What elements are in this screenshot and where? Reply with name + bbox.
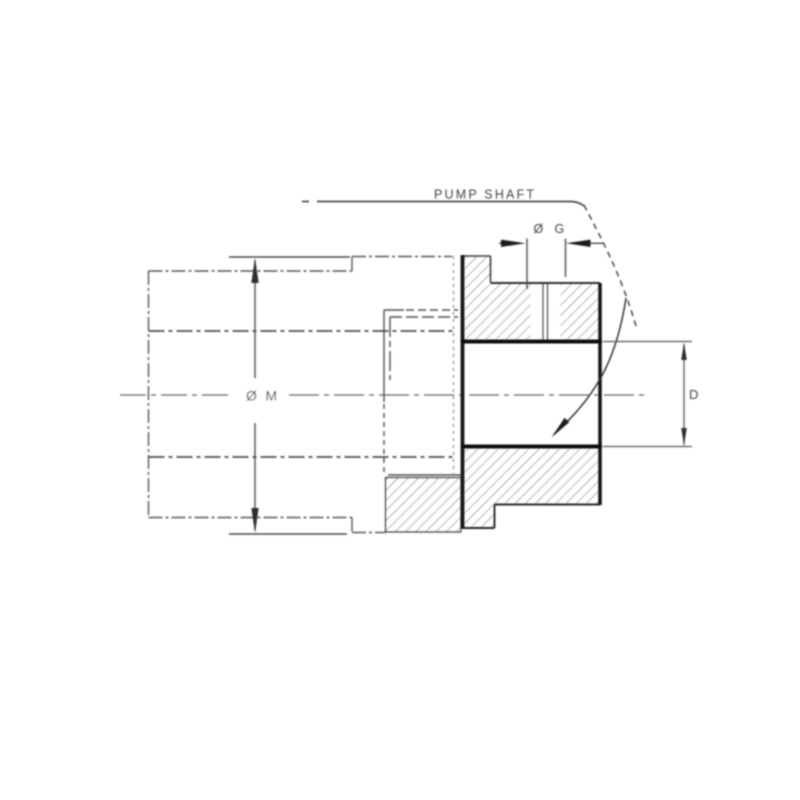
svg-text:Ø: Ø	[534, 222, 544, 236]
svg-text:PUMP SHAFT: PUMP SHAFT	[434, 188, 534, 202]
svg-text:Ø: Ø	[246, 388, 257, 404]
svg-text:D: D	[689, 387, 698, 402]
svg-text:G: G	[555, 222, 565, 236]
svg-text:M: M	[266, 388, 278, 404]
